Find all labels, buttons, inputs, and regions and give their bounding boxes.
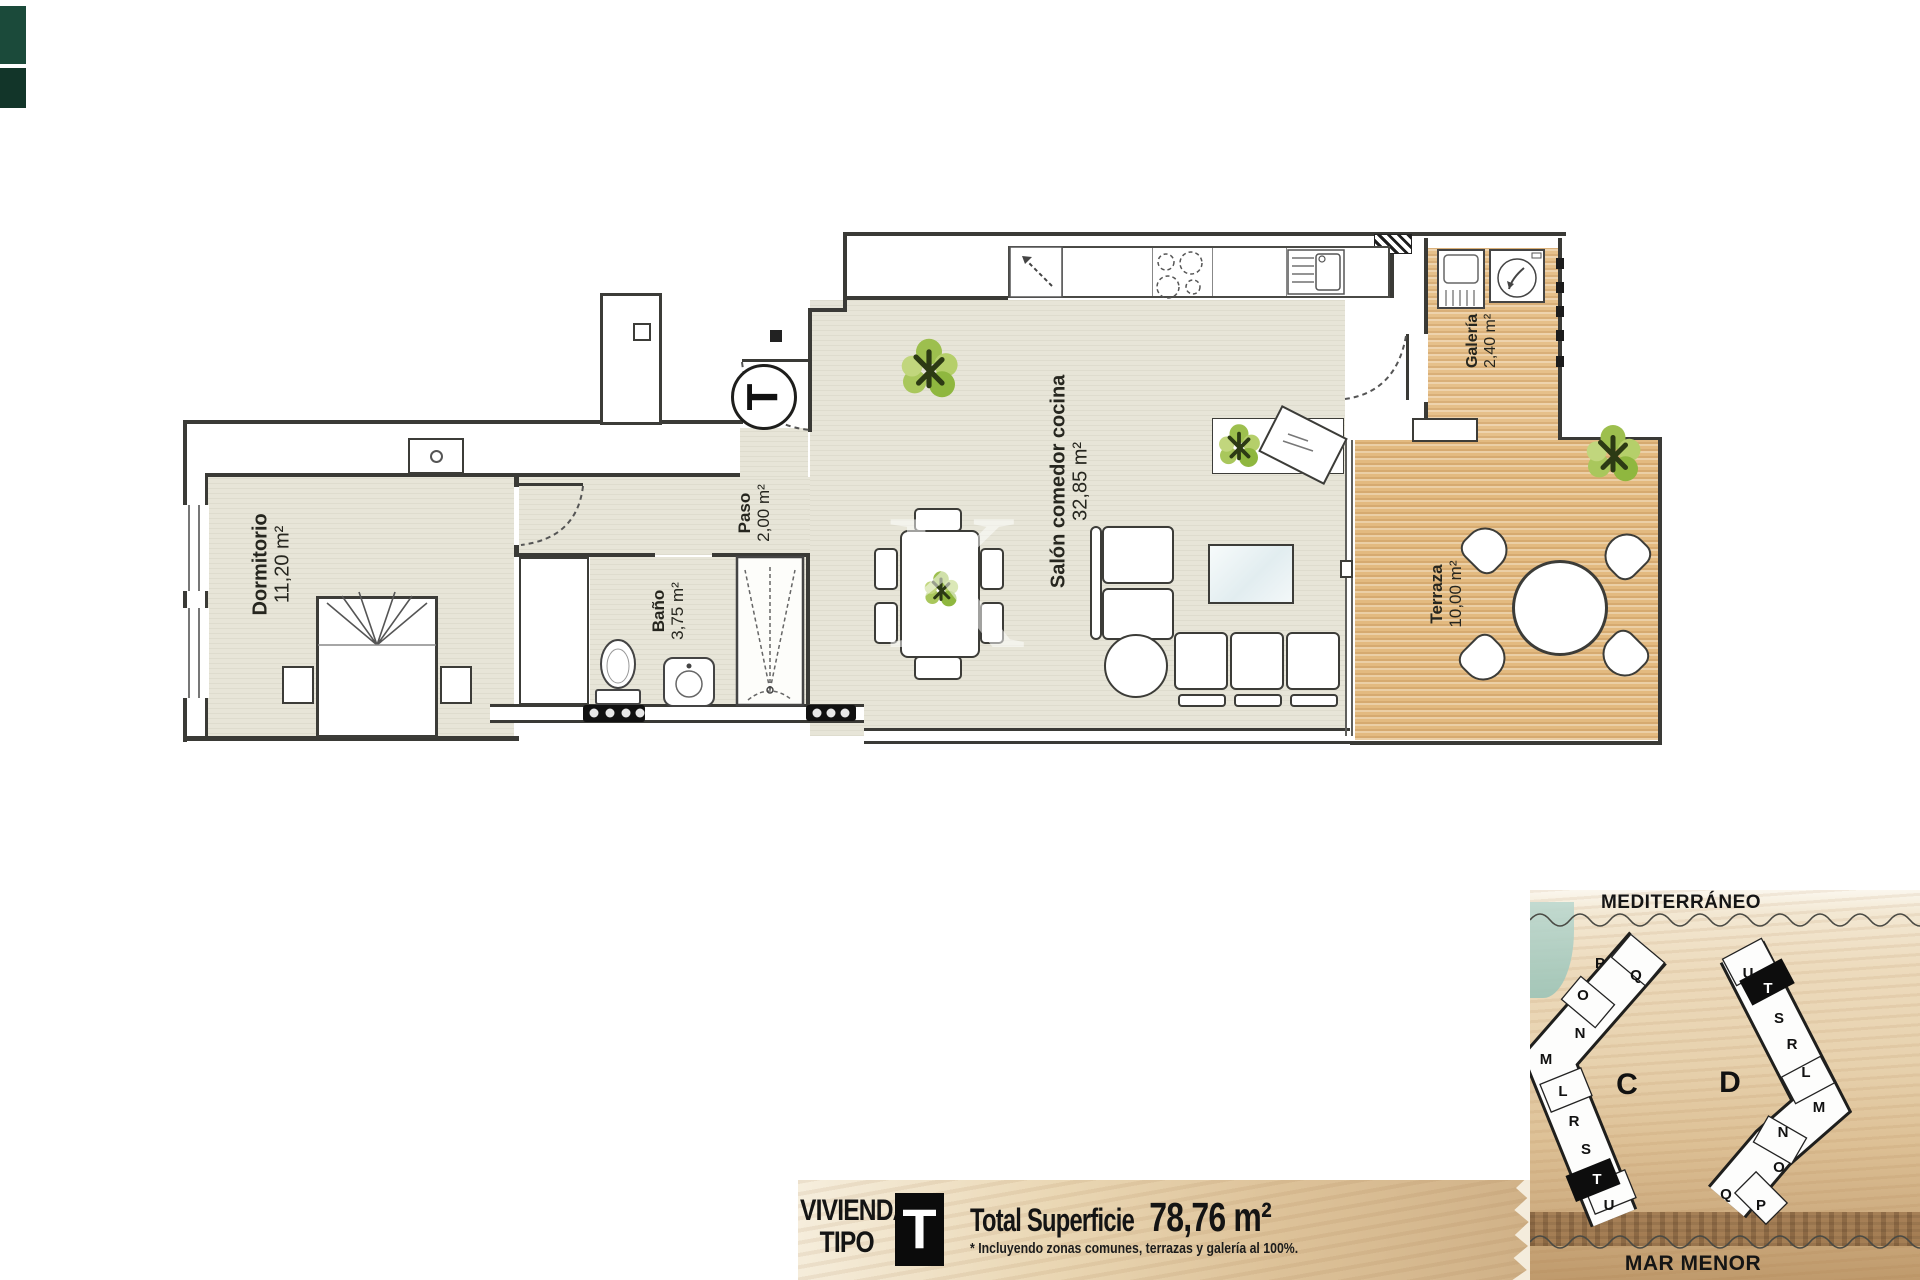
summary-bar: VIVIENDA TIPO T Total Superficie 78,76 m…	[798, 1180, 1530, 1280]
unit-letter: Q	[1630, 967, 1642, 984]
building-c	[1540, 934, 1665, 1218]
room-name: Galería	[1464, 266, 1482, 416]
unit-letter: R	[1569, 1113, 1580, 1130]
unit-letter-highlighted: T	[1592, 1171, 1601, 1188]
unit-letter: Q	[1720, 1186, 1732, 1203]
room-area: 11,20 m²	[272, 464, 294, 664]
watermark-letter: K	[885, 470, 1026, 694]
site-map-drawing: P Q O N M L R S T U C U T S R L M N	[1530, 890, 1920, 1280]
room-area: 10,00 m²	[1446, 509, 1465, 679]
building-label: C	[1616, 1068, 1638, 1101]
dwelling-label: VIVIENDA TIPO	[800, 1195, 874, 1259]
room-name: Baño	[649, 541, 668, 681]
unit-letter: S	[1581, 1141, 1591, 1158]
room-name: Dormitorio	[250, 464, 272, 664]
unit-letter: O	[1577, 987, 1589, 1004]
building-label: D	[1719, 1066, 1741, 1099]
unit-letter: M	[1813, 1099, 1826, 1116]
unit-letter-highlighted: T	[1763, 980, 1772, 997]
unit-letter: O	[1773, 1159, 1785, 1176]
room-label-bano: Baño 3,75 m²	[649, 541, 687, 681]
room-label-galeria: Galería 2,40 m²	[1464, 266, 1500, 416]
dwelling-word: VIVIENDA	[800, 1195, 874, 1227]
footnote: * Incluyendo zonas comunes, terrazas y g…	[970, 1240, 1298, 1257]
total-row: Total Superficie 78,76 m²	[970, 1194, 1352, 1241]
room-name: Terraza	[1427, 509, 1446, 679]
total-label: Total Superficie	[970, 1202, 1134, 1239]
room-area: 2,40 m²	[1482, 266, 1500, 416]
total-value: 78,76 m²	[1149, 1194, 1271, 1241]
room-label-paso: Paso 2,00 m²	[735, 448, 773, 578]
unit-letter: S	[1774, 1010, 1784, 1027]
unit-letter: N	[1778, 1124, 1789, 1141]
unit-letter: U	[1743, 965, 1754, 982]
sea-label-mediterraneo: MEDITERRÁNEO	[1530, 892, 1832, 914]
type-letter-box: T	[895, 1193, 944, 1266]
unit-letter: P	[1756, 1197, 1766, 1214]
room-area: 2,00 m²	[754, 448, 773, 578]
type-marker-circle: T	[731, 364, 797, 430]
type-word: TIPO	[800, 1227, 874, 1259]
unit-letter: L	[1801, 1064, 1810, 1081]
room-name: Paso	[735, 448, 754, 578]
room-area: 32,85 m²	[1070, 351, 1092, 611]
unit-letter: L	[1558, 1083, 1567, 1100]
room-label-dormitorio: Dormitorio 11,20 m²	[250, 464, 295, 664]
type-marker-letter: T	[734, 367, 794, 427]
unit-letter: U	[1604, 1197, 1615, 1214]
room-area: 3,75 m²	[668, 541, 687, 681]
room-label-terraza: Terraza 10,00 m²	[1427, 509, 1465, 679]
room-label-salon: Salón comedor cocina 32,85 m²	[1048, 351, 1093, 611]
unit-letter: P	[1595, 955, 1605, 972]
floorplan-page: T Dormitorio 11,20 m² Paso 2,00 m² Baño …	[0, 0, 1920, 1280]
unit-letter: R	[1787, 1036, 1798, 1053]
site-map: P Q O N M L R S T U C U T S R L M N	[1530, 890, 1920, 1280]
sea-label-mar-menor: MAR MENOR	[1543, 1252, 1843, 1276]
room-name: Salón comedor cocina	[1048, 351, 1070, 611]
unit-letter: M	[1540, 1051, 1553, 1068]
unit-letter: N	[1575, 1025, 1586, 1042]
